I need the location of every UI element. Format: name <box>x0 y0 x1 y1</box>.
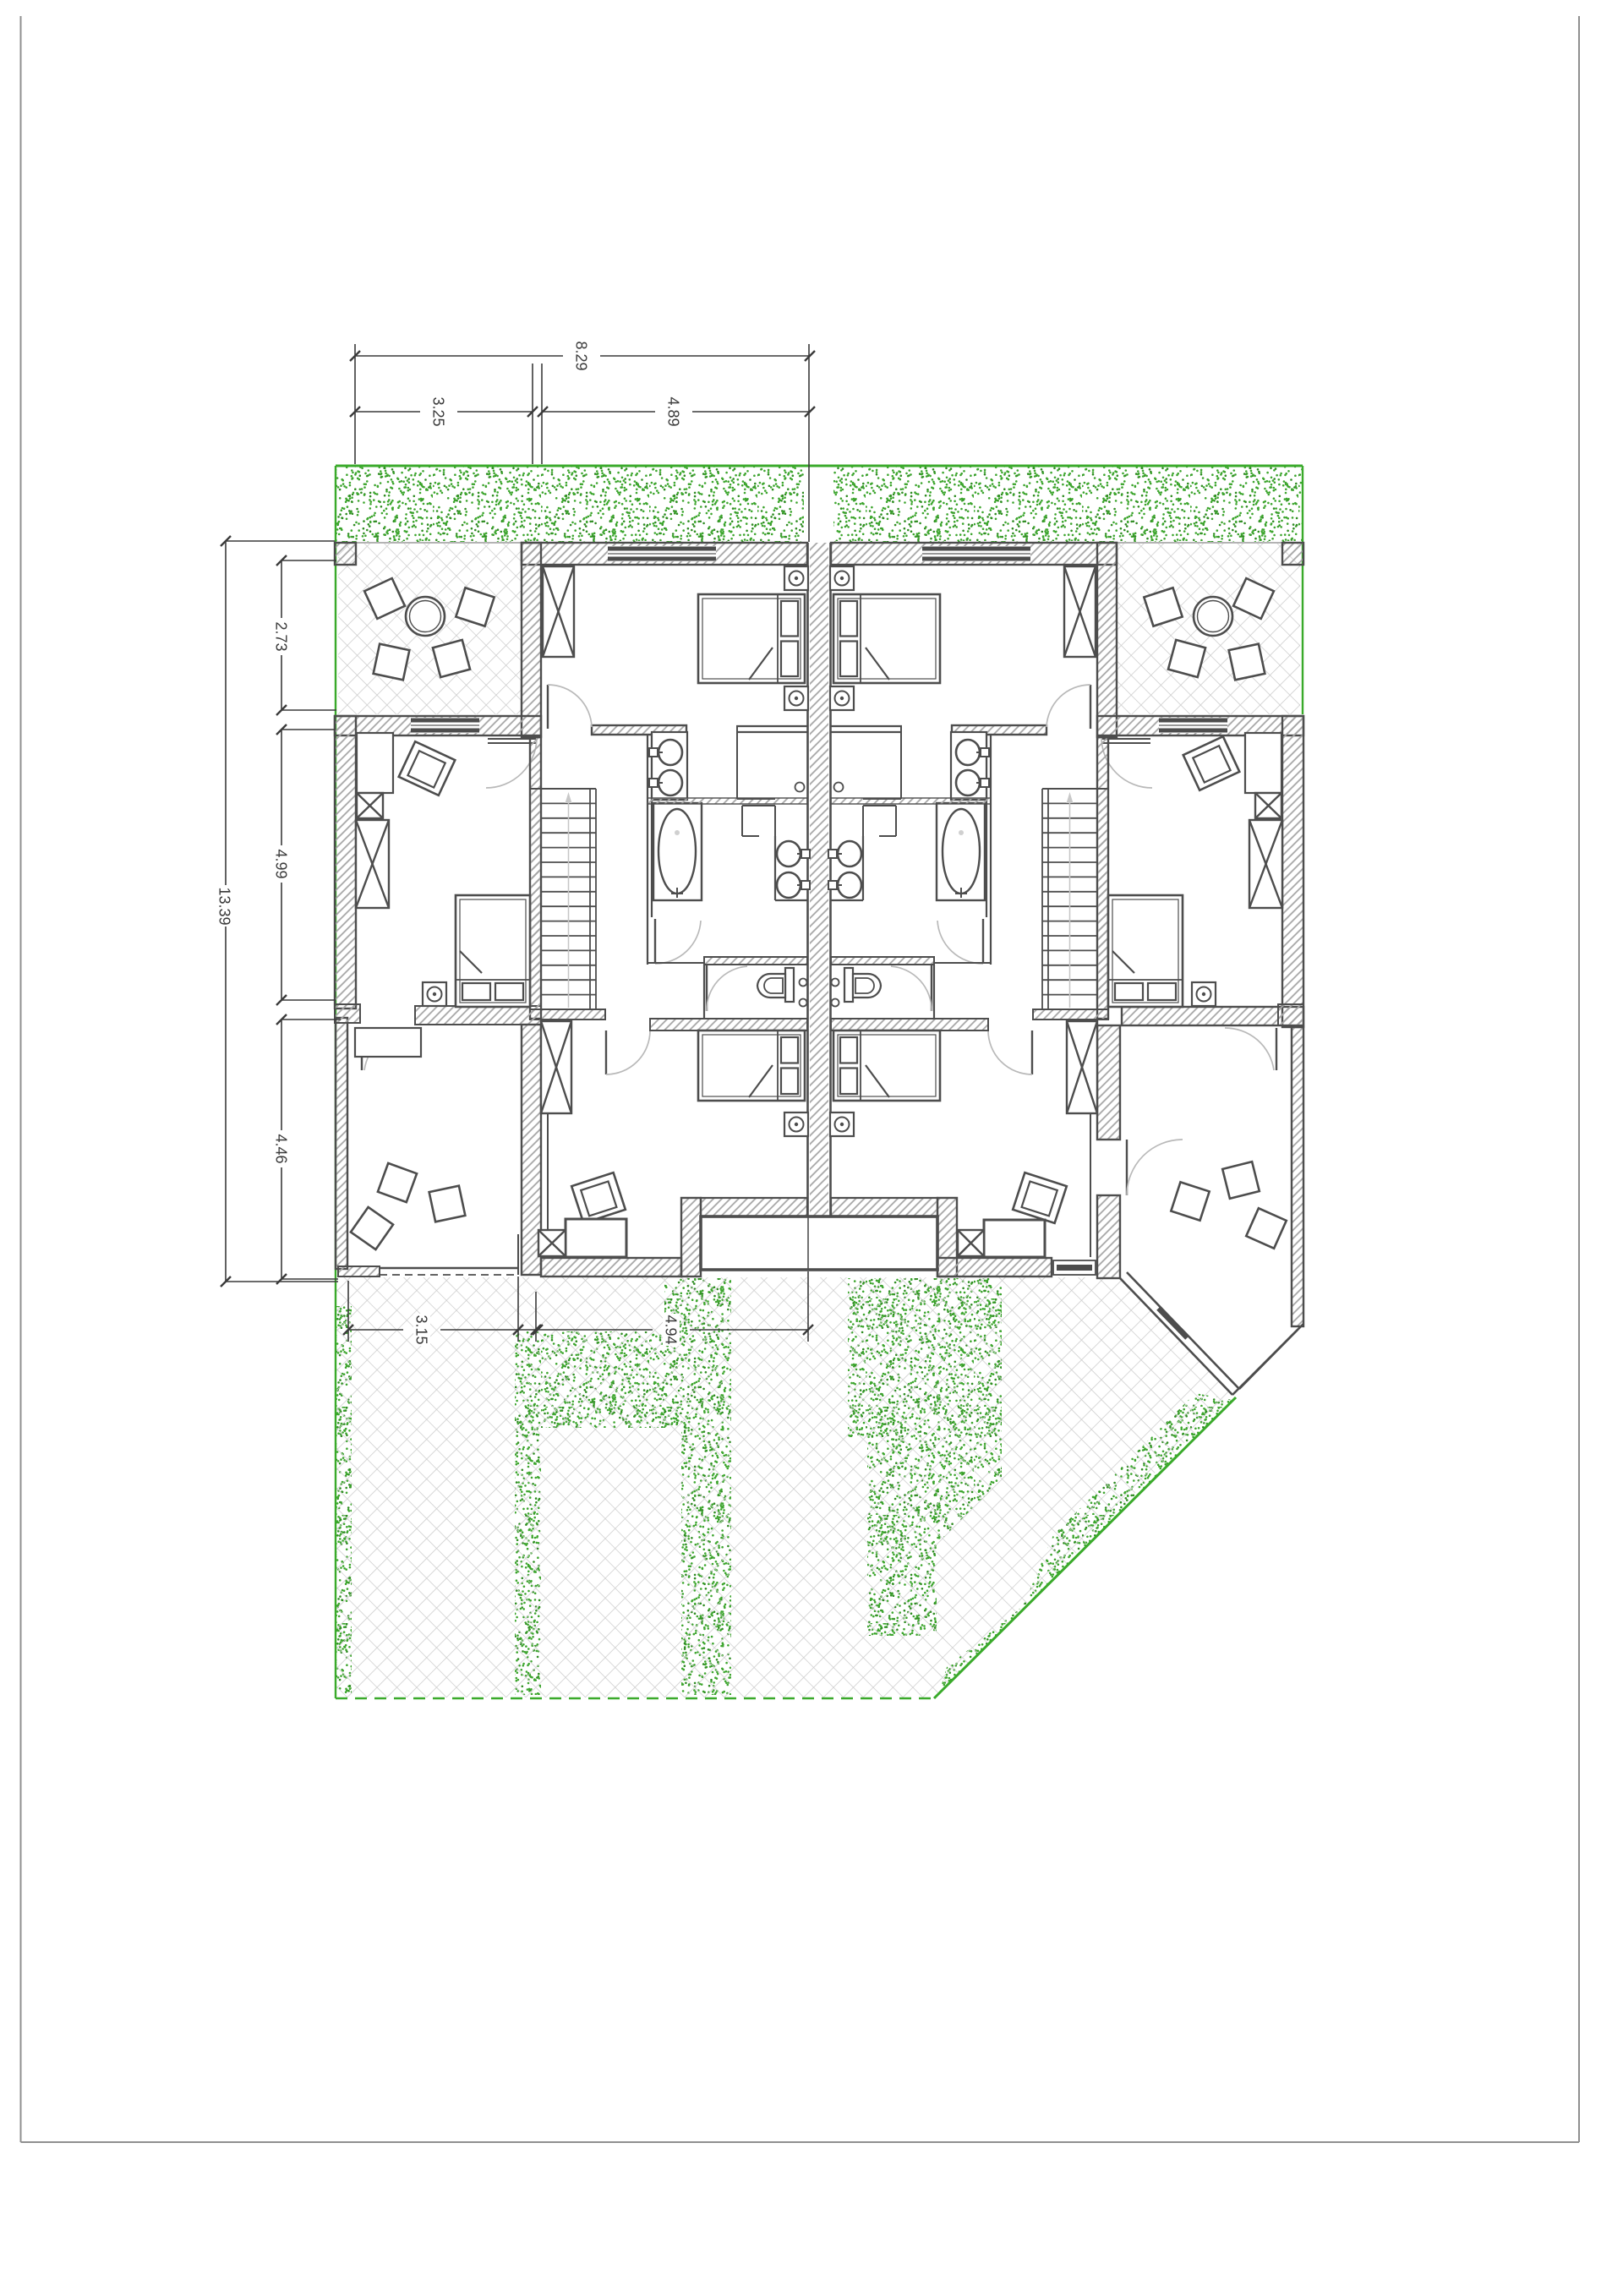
svg-text:2.73: 2.73 <box>273 621 290 651</box>
svg-text:4.46: 4.46 <box>273 1134 290 1163</box>
svg-text:13.39: 13.39 <box>216 887 233 925</box>
svg-text:3.25: 3.25 <box>430 396 447 426</box>
svg-text:4.99: 4.99 <box>273 849 290 878</box>
svg-text:3.15: 3.15 <box>413 1315 430 1344</box>
svg-text:4.89: 4.89 <box>665 396 682 426</box>
svg-text:8.29: 8.29 <box>573 341 590 370</box>
svg-text:4.94: 4.94 <box>663 1315 680 1344</box>
